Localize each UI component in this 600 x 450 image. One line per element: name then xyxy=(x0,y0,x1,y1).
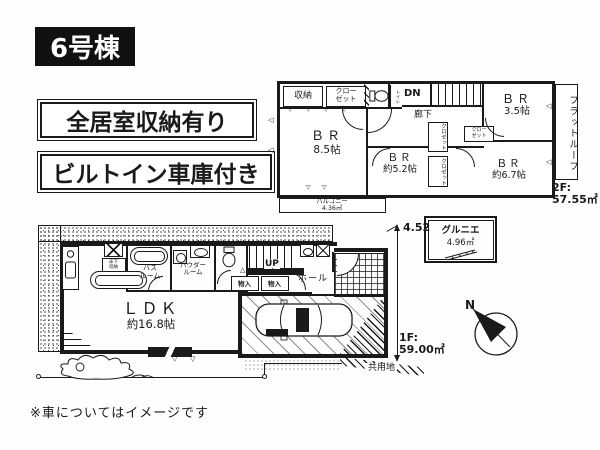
attic-box: グルニエ 4.96㎡ xyxy=(424,216,497,263)
floor1-area-value: 59.00㎡ xyxy=(399,343,445,356)
vent-mark: △ xyxy=(270,267,275,274)
floor2-area: 2F: 57.55㎡ xyxy=(552,182,598,207)
vent-mark: ▽ xyxy=(306,108,310,114)
common-land-label: 共用地 xyxy=(366,363,397,373)
bedroom2-size: 約5.2帖 xyxy=(372,165,428,176)
attic-name: グルニエ xyxy=(429,222,493,236)
door-arc xyxy=(456,148,475,167)
site-border-left xyxy=(38,225,61,352)
storage-box-1: 物入 xyxy=(231,276,259,291)
sink-icon xyxy=(63,247,78,287)
storage-box-2-label: 物入 xyxy=(262,281,287,288)
floor1-area: 1F: 59.00㎡ xyxy=(399,332,445,357)
storage-closet-2f: 収納 xyxy=(283,86,323,107)
feature-storage-badge: 全居室収納有り xyxy=(37,99,257,141)
floorplan-page: 6号棟 全居室収納有り ビルトイン車庫付き 収納 クロー ゼット トイレ DN xyxy=(0,0,600,450)
kitchen-sink-unit xyxy=(62,246,79,290)
compass-icon: N xyxy=(464,296,522,358)
dimension-value: 4.52 xyxy=(403,222,430,234)
vent-mark: ▽ xyxy=(342,108,346,114)
storage-box-2: 物入 xyxy=(261,276,289,291)
building-number-badge: 6号棟 xyxy=(35,27,135,66)
site-border-top xyxy=(38,225,333,242)
vent-mark: ▽ xyxy=(306,185,311,191)
attic-size: 4.96㎡ xyxy=(429,236,493,248)
feature-garage-label: ビルトイン車庫付き xyxy=(40,154,272,190)
underfloor-l2: 収納 xyxy=(109,265,118,270)
terrace-steps xyxy=(63,327,97,350)
balcony-size: 4.36㎡ xyxy=(322,205,342,212)
vent-mark: ▽ xyxy=(324,108,328,114)
ldk-name: ＬＤＫ xyxy=(108,300,194,318)
boundary-node xyxy=(262,374,267,379)
window-mark: ◁ xyxy=(546,103,551,110)
hall-basin-icon xyxy=(300,244,314,257)
door-arc xyxy=(217,270,231,284)
bathroom-label: バス ルーム xyxy=(131,265,169,281)
wall-segment xyxy=(214,243,216,292)
car-icon xyxy=(254,299,354,341)
bedroom4-label: ＢＲ 約6.7帖 xyxy=(476,159,542,181)
door-arc xyxy=(372,148,390,166)
vent-mark: ▽ xyxy=(288,108,292,114)
ldk-size: 約16.8帖 xyxy=(108,318,194,331)
window-mark: ◁ xyxy=(546,159,551,166)
wall-segment xyxy=(126,290,248,292)
toilet-icon-2f xyxy=(369,88,389,104)
vent-mark: ▽ xyxy=(190,356,195,363)
bedroom1-size: 8.5帖 xyxy=(295,145,359,157)
storage-box-1-label: 物入 xyxy=(232,281,257,288)
bedroom1-name: ＢＲ xyxy=(295,130,359,145)
compass-north-label: N xyxy=(465,298,475,312)
window-mark: ◁ xyxy=(268,147,273,154)
tree-icon xyxy=(56,350,161,382)
car-disclaimer-note: ※車についてはイメージです xyxy=(30,407,209,422)
closet-label: クロー ゼット xyxy=(327,88,365,104)
bathtub-icon xyxy=(130,247,168,265)
hall-basin-bowl xyxy=(303,248,313,256)
attic-inner: グルニエ 4.96㎡ xyxy=(428,220,494,260)
shoe-cabinet-icon xyxy=(316,244,330,257)
wall-segment xyxy=(402,105,484,107)
closet-vertical-1: クロゼット xyxy=(428,122,448,152)
wall-segment xyxy=(238,354,388,358)
door-arc xyxy=(368,109,392,133)
window-mark: ◁ xyxy=(268,117,273,124)
wall-segment xyxy=(366,146,484,148)
bath-l1: バス xyxy=(143,264,157,272)
balcony-label: バルコニー 4.36㎡ xyxy=(280,199,384,212)
storage-label: 収納 xyxy=(284,91,322,101)
vent-mark: △ xyxy=(240,267,245,274)
floor2-area-value: 57.55㎡ xyxy=(552,193,598,206)
washbasin-icon xyxy=(190,245,210,258)
closet-small-l2: ゼット xyxy=(471,133,486,139)
bedroom4-name: ＢＲ xyxy=(476,159,542,171)
second-floor-plan: 収納 クロー ゼット トイレ DN 廊下 ＢＲ xyxy=(277,81,555,198)
flat-roof: フラットルーフ xyxy=(555,84,578,180)
bedroom3-size: 3.5帖 xyxy=(486,106,548,117)
stairs-down-label: DN xyxy=(404,88,421,99)
wall-segment xyxy=(334,248,388,252)
range-icon xyxy=(104,243,123,257)
bedroom3-label: ＢＲ 3.5帖 xyxy=(486,93,548,118)
feature-storage-label: 全居室収納有り xyxy=(40,102,254,138)
feature-garage-badge: ビルトイン車庫付き xyxy=(37,151,275,193)
bedroom4-size: 約6.7帖 xyxy=(476,171,542,182)
hallway-label: 廊下 xyxy=(414,110,432,120)
balcony: バルコニー 4.36㎡ xyxy=(279,198,386,213)
approach-strip xyxy=(244,359,340,370)
underfloor-storage-label: 床下 収納 xyxy=(103,260,124,270)
closet-vertical-2: クロゼット xyxy=(428,156,448,187)
ladder-icon xyxy=(443,248,479,260)
boundary-node xyxy=(36,374,41,379)
stairs-2f xyxy=(430,84,483,105)
toilet-vertical-label: トイレ xyxy=(390,85,400,109)
toilet-icon-1f xyxy=(221,246,237,268)
powder-l2: ルーム xyxy=(183,268,202,276)
bedroom3-name: ＢＲ xyxy=(486,93,548,106)
powder-room-label: パウダー ルーム xyxy=(172,262,214,277)
bathtub-inner xyxy=(134,251,165,262)
ldk-label: ＬＤＫ 約16.8帖 xyxy=(108,300,194,331)
basin-bowl xyxy=(194,248,208,257)
closet-2f: クロー ゼット xyxy=(326,86,366,107)
toilet-stall-2f xyxy=(364,84,390,109)
vent-mark: ▽ xyxy=(172,356,177,363)
closet-label-l1: クロー xyxy=(336,87,357,95)
bedroom1-label: ＢＲ 8.5帖 xyxy=(295,130,359,156)
vent-mark: ▽ xyxy=(322,185,327,191)
dimension-line xyxy=(397,230,398,356)
closet-label-l2: ゼット xyxy=(336,95,357,103)
